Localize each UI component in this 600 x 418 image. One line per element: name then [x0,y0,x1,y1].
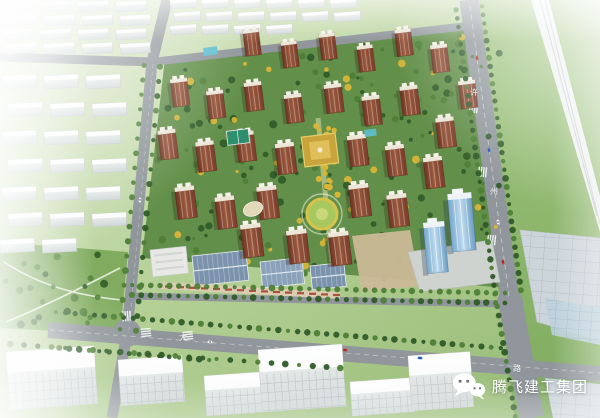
tree [344,84,351,91]
residential-tower [344,179,372,218]
street-tree [250,285,256,291]
street-tree [496,313,502,319]
street-tree [474,299,481,306]
street-tree [428,289,432,293]
street-tree [489,345,494,350]
street-tree [455,299,461,305]
street-tree [334,286,340,292]
street-tree [246,325,252,331]
tree [324,67,329,72]
haze [552,0,600,418]
tree [392,116,399,123]
street-tree [186,294,190,298]
yellow-tree [317,128,321,132]
street-tree [509,227,515,233]
tree [494,225,498,229]
street-tree [382,336,387,341]
street-tree [288,296,293,301]
tree [349,72,356,79]
street-tree [484,290,489,295]
street-tree [487,249,491,253]
street-tree [223,295,228,300]
tree [343,75,350,82]
car [418,357,423,360]
street-tree [501,349,508,356]
street-tree [381,288,387,294]
street-tree [335,297,340,302]
yellow-tree [328,179,333,184]
street-tree [315,296,322,303]
street-tree [260,296,264,300]
street-tree [380,297,387,304]
street-tree [418,298,424,304]
street-tree [344,297,349,302]
street-tree [345,288,349,292]
street-tree [260,286,265,291]
street-tree [391,288,396,293]
street-tree [430,339,437,346]
tree [480,227,483,230]
street-tree [233,285,237,289]
street-tree [498,322,503,327]
street-tree [213,284,218,289]
street-tree [485,239,491,245]
street-tree [200,355,205,360]
street-tree [269,295,274,300]
street-tree [362,334,368,340]
street-tree [391,298,396,303]
street-tree [232,294,238,300]
street-tree [511,236,517,242]
shop-sign [309,293,316,295]
car [343,349,348,352]
street-tree [333,332,339,338]
street-tree [343,332,349,338]
street-tree [489,266,494,271]
street-tree [400,299,405,304]
street-tree [187,354,192,359]
street-tree [186,284,191,289]
street-tree [483,222,489,228]
street-tree [203,293,209,299]
street-tree [353,333,359,339]
street-tree [176,283,182,289]
street-tree [513,253,519,259]
street-tree [256,325,263,332]
residential-tower [357,91,382,126]
street-tree [227,324,232,329]
street-tree [195,294,200,299]
street-tree [269,360,275,366]
street-tree [401,338,406,343]
street-tree [411,338,417,344]
street-tree [427,299,433,305]
yellow-tree [313,123,319,129]
yellow-tree [322,171,327,176]
street-tree [353,287,359,293]
street-tree [325,286,331,292]
residential-tower [320,80,345,114]
residential-tower [353,42,376,73]
street-tree [324,331,329,336]
street-tree [437,289,443,295]
street-tree [491,282,496,287]
street-tree [409,298,415,304]
street-tree [478,343,484,349]
street-tree [512,244,518,250]
street-tree [278,285,284,291]
street-tree [363,287,368,292]
swimming-pool [364,129,377,137]
wechat-icon [452,371,486,401]
street-tree [446,289,452,295]
street-tree [250,294,257,301]
street-tree [237,325,242,330]
street-tree [456,289,461,294]
street-tree [372,287,378,293]
street-tree [485,232,489,236]
street-tree [204,284,209,289]
street-tree [304,329,310,335]
tree [299,53,305,59]
tree [316,83,322,89]
street-tree [310,363,316,369]
street-tree [483,299,489,305]
yellow-tree [326,184,332,190]
tree [307,54,315,62]
street-tree [503,291,508,296]
street-tree [286,329,290,333]
street-tree [297,286,303,292]
street-tree [241,295,246,300]
street-tree [324,364,330,370]
street-tree [504,359,509,364]
street-tree [194,283,200,289]
shop-sign [321,293,328,295]
yellow-tree [316,176,322,182]
street-tree [440,340,447,347]
shop-sign [261,290,268,292]
company-name: 腾飞建工集团 [492,376,588,397]
street-tree [275,327,281,333]
street-tree [518,287,524,293]
street-tree [465,299,471,305]
watermark: 腾飞建工集团 [452,371,588,401]
rendering-frame: 许州路大 腾飞建工集团 [0,0,600,418]
street-tree [218,323,223,328]
street-tree [223,285,228,290]
street-tree [242,285,246,289]
street-tree [242,359,247,364]
street-tree [509,218,515,224]
street-tree [470,344,474,348]
tree [380,47,384,51]
street-tree [500,340,506,346]
street-tree [353,297,359,303]
yellow-tree [334,192,340,198]
street-tree [278,295,284,301]
street-tree [269,285,276,292]
shop-sign [297,292,304,294]
street-tree [213,294,219,300]
street-tree [499,331,505,337]
street-tree [282,361,289,368]
street-tree [487,256,493,262]
street-tree [178,319,184,325]
street-tree [466,290,471,295]
street-tree [459,342,465,348]
shop-sign [333,294,340,296]
street-tree [337,365,344,372]
street-tree [316,287,321,292]
yellow-tree [326,126,331,131]
tree [370,166,377,173]
street-tree [516,270,522,276]
street-tree [208,322,214,328]
tree [371,221,377,227]
street-tree [297,363,301,367]
street-tree [474,289,481,296]
street-tree [362,297,367,302]
street-tree [255,359,260,364]
street-tree [409,288,416,295]
shop-sign [237,289,244,291]
shop-sign [273,291,280,293]
street-tree [288,286,293,291]
retail-block [352,230,420,292]
street-tree [214,357,218,361]
yellow-tree [331,128,336,133]
lawn-center [316,208,328,220]
street-tree [371,297,377,303]
street-tree [306,296,311,301]
street-tree [447,300,451,304]
street-tree [297,296,302,301]
street-tree [372,335,377,340]
shop-sign [285,292,292,294]
street-tree [421,340,425,344]
street-tree [493,300,498,305]
street-tree [503,301,508,306]
street-tree [493,290,498,295]
street-tree [437,299,443,305]
street-tree [517,278,523,284]
street-tree [267,327,271,331]
tree [370,83,373,86]
street-tree [227,357,233,363]
street-tree [307,287,311,291]
car [208,341,213,344]
street-tree [419,289,423,293]
street-tree [515,262,520,267]
street-tree [325,296,330,301]
tree [328,173,332,177]
street-tree [198,321,204,327]
tree [312,69,318,75]
street-tree [490,274,495,279]
tree [359,76,364,81]
street-tree [400,289,404,293]
street-tree [295,329,301,335]
street-tree [391,336,398,343]
street-tree [207,358,211,362]
street-tree [449,341,455,347]
street-tree [176,294,180,298]
site-rendering-canvas [0,0,600,418]
intersection [497,289,523,315]
gold-plaza [301,133,338,167]
tree [323,71,330,78]
street-tree [189,320,194,325]
street-tree [499,346,503,350]
street-tree [314,330,320,336]
